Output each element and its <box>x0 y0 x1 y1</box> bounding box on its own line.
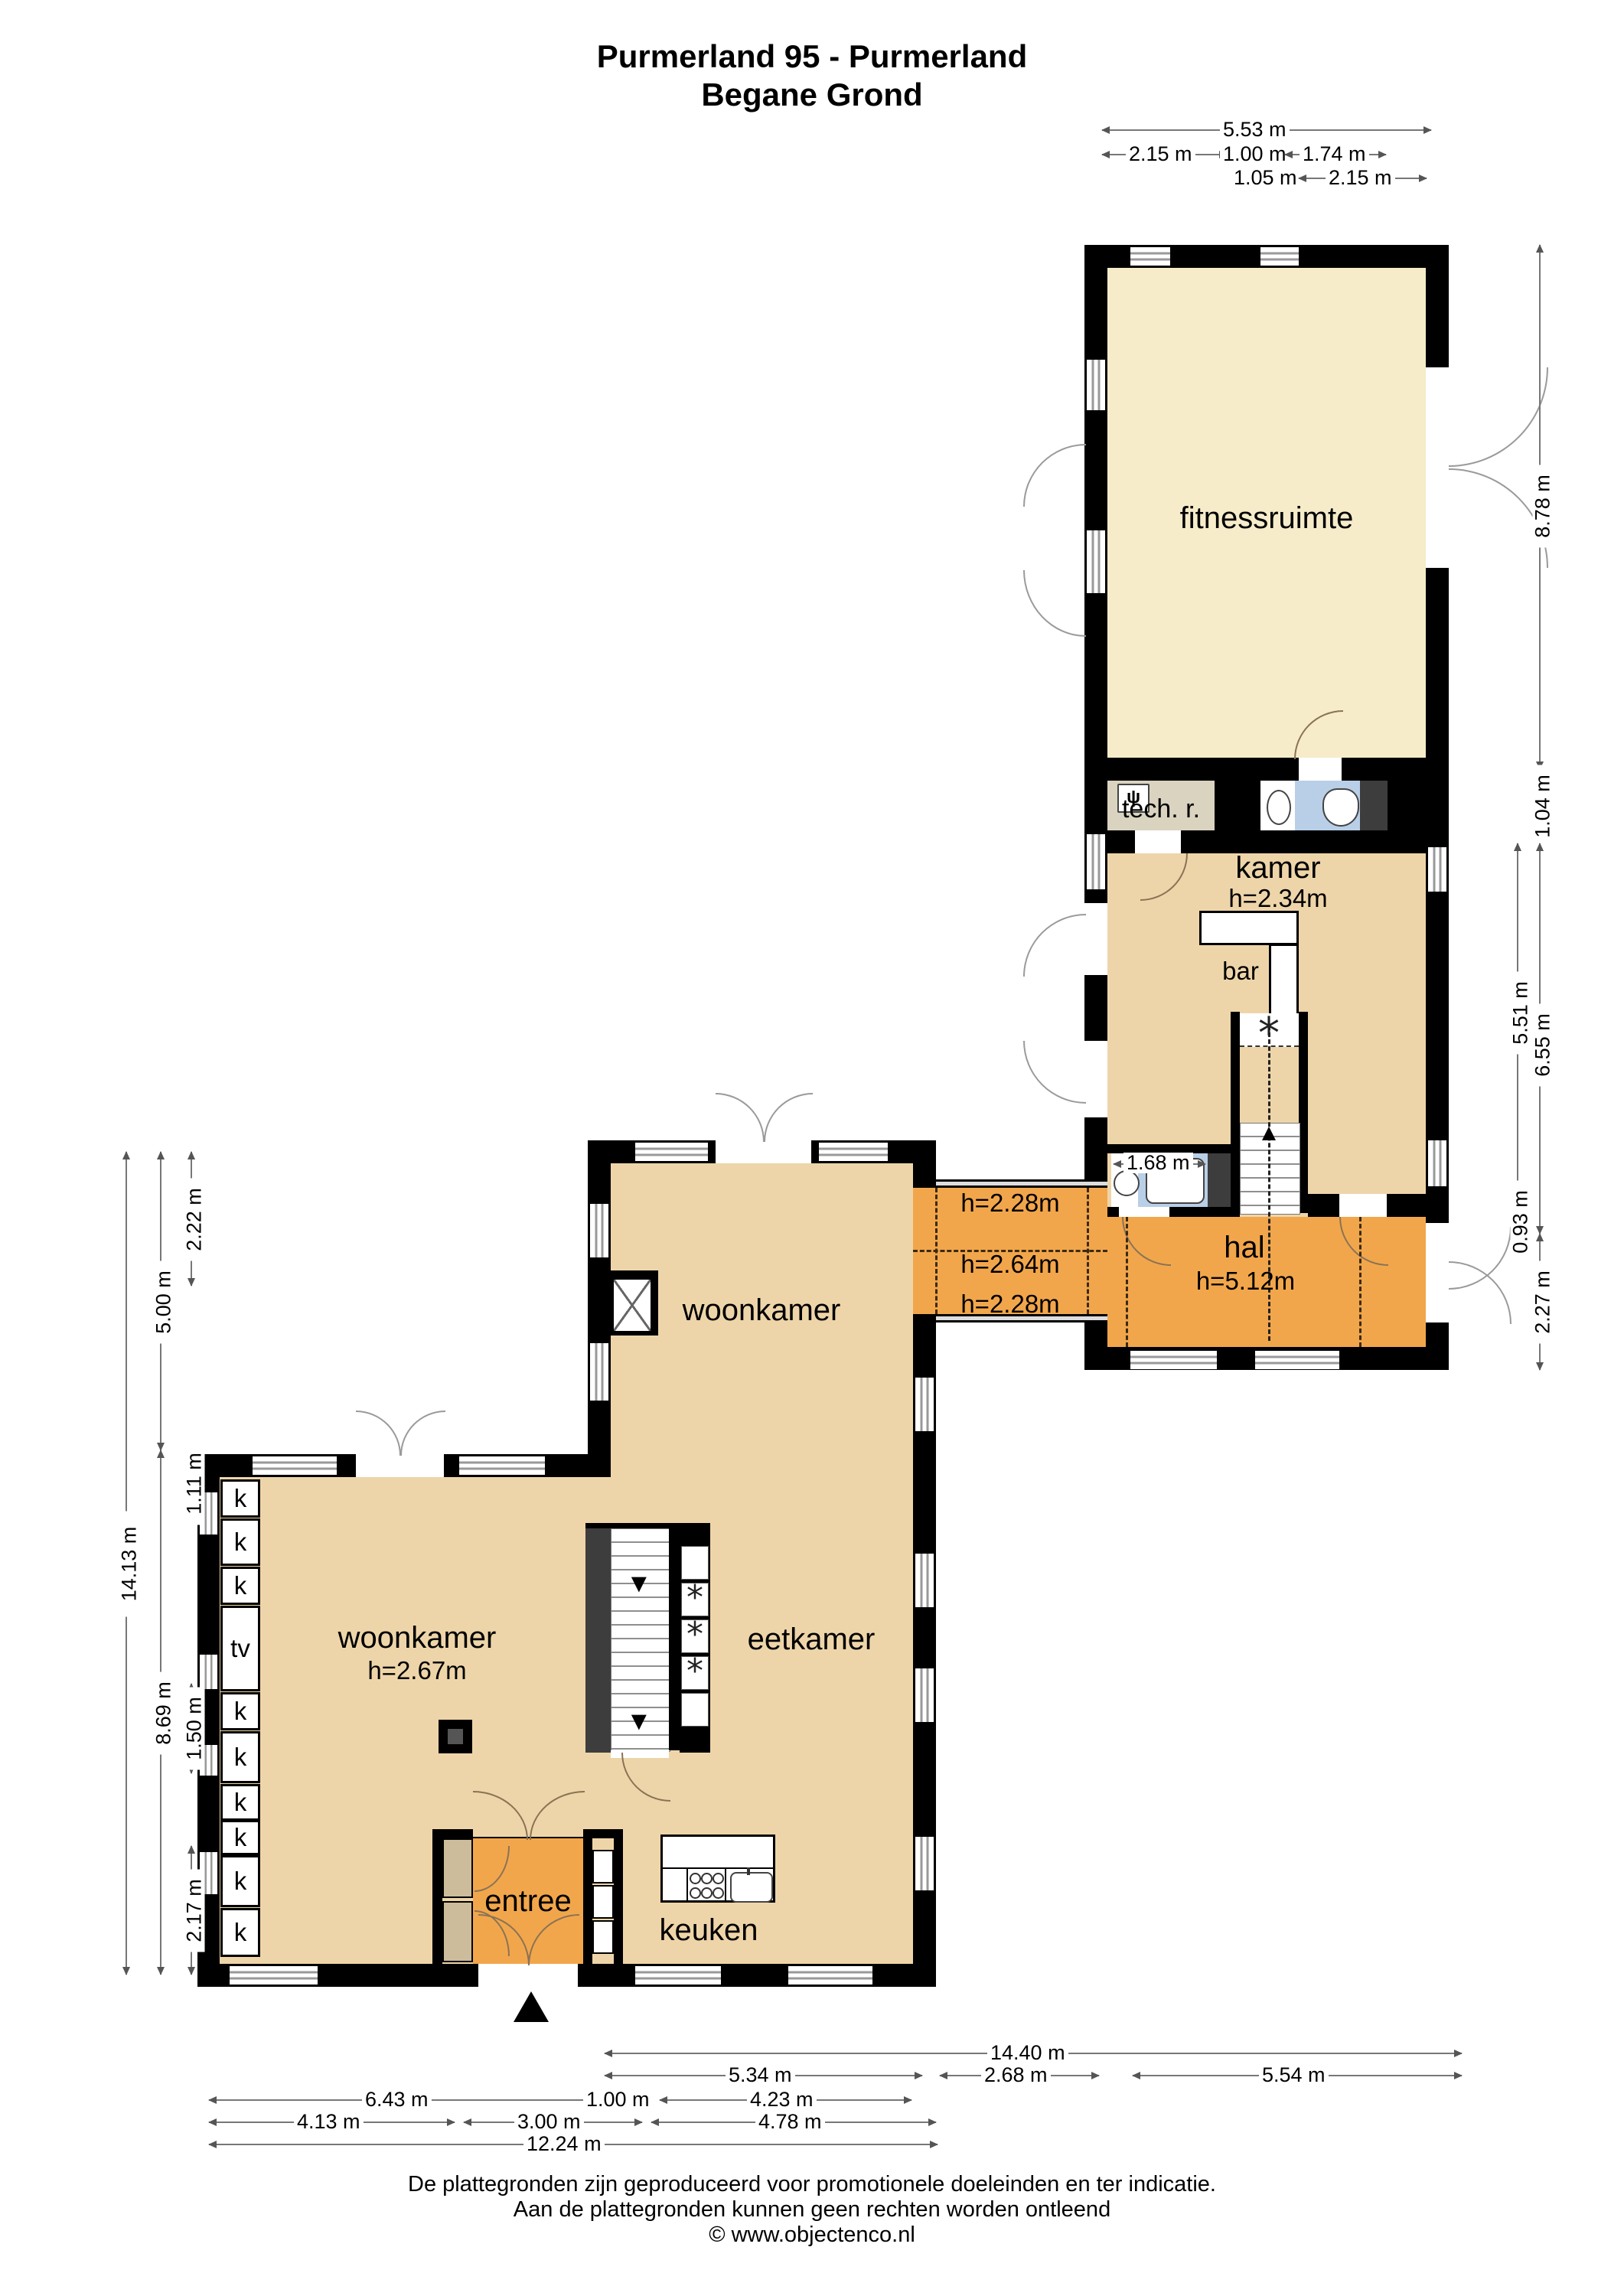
closet-box: k <box>220 1784 260 1821</box>
closet-box: k <box>220 1567 260 1605</box>
burner-icon <box>690 1887 701 1899</box>
door-swing-arc <box>1023 914 1086 977</box>
room-height-hal: h=5.12m <box>1182 1267 1309 1296</box>
bar-counter <box>1269 944 1299 1018</box>
door-swing-arc <box>1023 444 1086 507</box>
window <box>200 1655 217 1689</box>
closet-label: k <box>234 1571 247 1600</box>
wall <box>432 1838 442 1964</box>
window <box>635 1143 708 1161</box>
corridor-height-bottom: h=2.28m <box>945 1290 1075 1319</box>
room-label-entree: entree <box>473 1884 583 1919</box>
window <box>1255 1351 1339 1369</box>
disclaimer-line2: Aan de plattegronden kunnen geen rechten… <box>0 2197 1624 2223</box>
bar-counter <box>1199 911 1299 945</box>
closet-box: k <box>220 1908 260 1957</box>
dimension-label: 1.00 m <box>1220 144 1290 165</box>
closet-label: k <box>234 1867 247 1896</box>
burner-icon <box>701 1887 713 1899</box>
window <box>788 1966 872 1985</box>
door-swing-arc <box>1449 1261 1511 1324</box>
door-swing-arc <box>1449 367 1548 467</box>
closet-box: k <box>220 1731 260 1783</box>
door-opening <box>1135 830 1181 853</box>
closet-label: k <box>234 1528 247 1557</box>
burner-icon <box>690 1873 701 1884</box>
dimension-label: 1.05 m <box>1231 168 1300 188</box>
sink-icon <box>1114 1170 1140 1196</box>
window <box>915 1378 934 1431</box>
closet-label: k <box>234 1918 247 1947</box>
wall <box>913 1140 936 1188</box>
window <box>459 1456 545 1475</box>
dimension-label: 1.50 m <box>184 1688 205 1770</box>
dimension-label: 4.13 m <box>294 2112 364 2132</box>
door-opening <box>1426 367 1449 568</box>
dimension-label: 14.13 m <box>119 1512 140 1617</box>
window <box>915 1837 934 1890</box>
page-subtitle: Begane Grond <box>0 77 1624 113</box>
dimension-label: 12.24 m <box>523 2134 605 2154</box>
dimension-label: 6.43 m <box>362 2089 432 2110</box>
tv-label: tv <box>230 1634 250 1663</box>
door-opening <box>356 1454 444 1477</box>
door-swing-arc <box>1023 1041 1086 1104</box>
window <box>1428 847 1446 892</box>
ceiling-zone-dash <box>1126 1217 1128 1347</box>
closet-box: k <box>220 1820 260 1855</box>
dimension-label: 2.15 m <box>1326 168 1395 188</box>
window <box>1087 360 1105 410</box>
cabinet-box <box>592 1850 614 1883</box>
dimension-label: 1.68 m <box>1123 1153 1193 1173</box>
room-label-fitnessruimte: fitnessruimte <box>1167 501 1366 536</box>
stair-side-panel <box>585 1528 611 1753</box>
wall <box>432 1829 473 1838</box>
page-title: Purmerland 95 - Purmerland <box>0 38 1624 75</box>
dimension-label: 1.04 m <box>1533 765 1554 848</box>
toilet-icon <box>1322 788 1359 827</box>
dimension-label: 2.17 m <box>184 1870 205 1952</box>
entree-closet <box>442 1838 473 1898</box>
dimension-label: 5.34 m <box>726 2065 795 2086</box>
closet-label: k <box>234 1697 247 1726</box>
dimension-label: 4.78 m <box>755 2112 825 2132</box>
window <box>253 1456 337 1475</box>
ceiling-zone-dash <box>1359 1217 1361 1347</box>
door-swing-arc <box>400 1411 445 1456</box>
fan-icon: * <box>681 1578 709 1617</box>
corridor-height-top: h=2.28m <box>945 1189 1075 1218</box>
cabinet-box <box>681 1546 709 1580</box>
burner-icon <box>701 1873 713 1884</box>
window <box>590 1204 608 1257</box>
dimension-label: 1.00 m <box>583 2089 653 2110</box>
tap-icon <box>747 1867 750 1875</box>
burner-icon <box>713 1887 724 1899</box>
stair-down-arrow-icon: ▼ <box>626 1707 652 1737</box>
wall <box>583 1838 592 1964</box>
stair-direction-arrow-icon <box>1262 1127 1276 1140</box>
window <box>819 1143 888 1161</box>
dimension-label: 3.00 m <box>514 2112 584 2132</box>
door-opening <box>1084 1041 1107 1117</box>
corridor-glass-wall <box>913 1179 1107 1188</box>
closet-box: k <box>220 1479 260 1518</box>
window <box>915 1554 934 1607</box>
room-label-bar: bar <box>1214 957 1267 986</box>
room-height-kamer: h=2.34m <box>1190 884 1366 913</box>
tv-cabinet: tv <box>220 1606 260 1691</box>
closet-label: k <box>234 1484 247 1513</box>
fan-icon: * <box>681 1652 709 1691</box>
burner-icon <box>713 1873 724 1884</box>
room-label-woonkamer: woonkamer <box>329 1621 505 1655</box>
window <box>1130 1351 1217 1369</box>
closet-label: k <box>234 1823 247 1852</box>
window <box>1428 1140 1446 1186</box>
room-label-woonkamer-upper: woonkamer <box>651 1293 872 1328</box>
wall <box>669 1528 680 1750</box>
dimension-label: 2.22 m <box>184 1179 205 1261</box>
window <box>590 1343 608 1401</box>
door-opening <box>716 1140 811 1163</box>
window <box>1260 247 1299 266</box>
dimension-label: 1.11 m <box>184 1443 205 1525</box>
closet-label: k <box>234 1743 247 1772</box>
dimension-label: 5.00 m <box>154 1261 174 1344</box>
window <box>1087 834 1105 889</box>
door-swing-arc <box>1023 570 1086 637</box>
dimension-label: 6.55 m <box>1533 1004 1554 1087</box>
door-opening <box>1119 1207 1169 1217</box>
room-label-tech: tech. r. <box>1107 794 1215 824</box>
copyright: © www.objectenco.nl <box>0 2223 1624 2248</box>
disclaimer-line1: De plattegronden zijn geproduceerd voor … <box>0 2172 1624 2197</box>
floorplan-page: Purmerland 95 - Purmerland Begane Grond … <box>0 0 1624 2296</box>
door-opening <box>1084 903 1107 975</box>
dimension-label: 14.40 m <box>987 2043 1068 2063</box>
wall <box>1107 758 1426 781</box>
wall <box>1231 1012 1240 1213</box>
stair-down-arrow-icon: ▼ <box>626 1569 652 1599</box>
window <box>1130 247 1170 266</box>
entree-closet <box>442 1901 473 1962</box>
fan-icon: * <box>681 1615 709 1654</box>
dimension-label: 1.74 m <box>1300 144 1369 165</box>
room-label-keuken: keuken <box>647 1913 770 1948</box>
closet-box: k <box>220 1855 260 1907</box>
cabinet-box <box>681 1693 709 1727</box>
column-core <box>448 1729 463 1744</box>
sink-icon <box>1267 790 1291 825</box>
wall <box>614 1838 623 1964</box>
cabinet-box <box>592 1885 614 1919</box>
room-label-eetkamer: eetkamer <box>735 1623 888 1657</box>
dimension-label: 8.69 m <box>154 1672 174 1755</box>
window <box>915 1668 934 1722</box>
entrance-marker-icon <box>514 1991 549 2022</box>
door-opening <box>478 1964 578 1987</box>
window <box>230 1966 318 1985</box>
dimension-label: 2.68 m <box>981 2065 1051 2086</box>
dimension-label: 2.15 m <box>1126 144 1195 165</box>
closet-box: k <box>220 1518 260 1566</box>
door-opening <box>1426 1223 1449 1322</box>
closet-dark <box>1208 1153 1231 1207</box>
door-swing-arc <box>764 1093 813 1142</box>
door-swing-arc <box>716 1093 765 1142</box>
dimension-label: 8.78 m <box>1533 465 1554 548</box>
door-opening <box>1339 1194 1387 1217</box>
dimension-label: 4.23 m <box>747 2089 817 2110</box>
wall <box>1388 781 1426 830</box>
corridor-height-mid: h=2.64m <box>945 1250 1075 1279</box>
closet-dark <box>1360 781 1388 830</box>
chimney-flue-icon <box>612 1278 652 1332</box>
dimension-label: 5.51 m <box>1511 972 1531 1055</box>
room-label-hal: hal <box>1198 1231 1290 1265</box>
window <box>635 1966 721 1985</box>
kitchen-sink-icon <box>730 1872 773 1903</box>
dimension-label: 0.93 m <box>1511 1181 1531 1264</box>
closet-label: k <box>234 1788 247 1817</box>
dimension-label: 5.54 m <box>1259 2065 1329 2086</box>
door-opening <box>1299 758 1342 781</box>
dimension-label: 5.53 m <box>1220 119 1290 140</box>
window <box>1087 530 1105 593</box>
room-label-kamer: kamer <box>1190 851 1366 885</box>
wall <box>583 1829 623 1838</box>
cabinet-box <box>592 1920 614 1954</box>
door-swing-arc <box>356 1411 401 1456</box>
room-height-woonkamer: h=2.67m <box>348 1656 486 1685</box>
closet-box: k <box>220 1692 260 1730</box>
dimension-label: 2.27 m <box>1533 1261 1554 1344</box>
